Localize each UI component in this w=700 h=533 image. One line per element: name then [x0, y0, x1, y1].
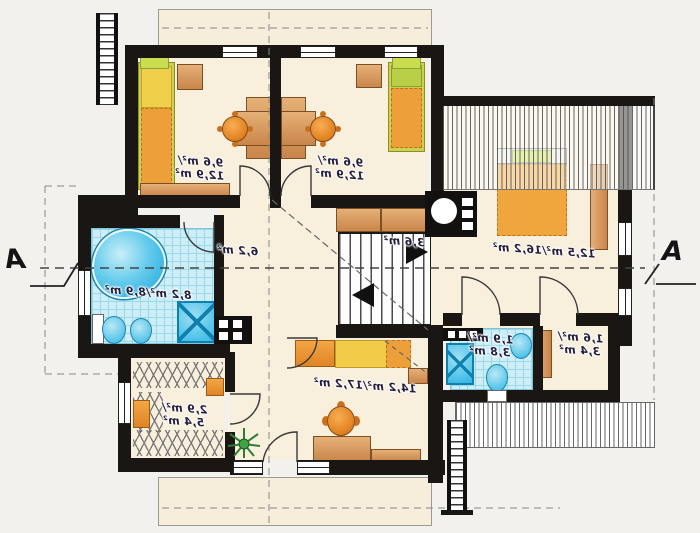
shelf-middle	[392, 57, 421, 69]
label-wardrobe: 2,9 m²/ 5,4 m²	[147, 395, 221, 436]
window-top-1	[222, 46, 258, 58]
desk-bottom	[313, 436, 371, 462]
wall-wardrobe-bottom	[118, 458, 230, 472]
cabinet-bottom	[295, 340, 335, 367]
chair-bottom	[327, 406, 355, 436]
floor-plan: 9,6 m²/ 12,9 m² 9,6 m²/ 12,9 m² 6,2 m² 3…	[0, 0, 700, 533]
chimney-flue-circle	[431, 198, 457, 224]
roof-slope-bottom-right	[455, 402, 655, 448]
marker-letter: A	[662, 236, 683, 267]
chair-middle	[310, 116, 336, 142]
bed-bottom-blanket	[386, 340, 411, 368]
section-jog-right	[645, 264, 696, 284]
wall-wardrobe-right-upper	[225, 352, 235, 392]
chimney-bathroom-icon	[214, 316, 252, 344]
label-storage: 1,6 m²/ 3,4 m²	[547, 324, 613, 364]
wall-wardrobe-right-lower	[225, 432, 235, 462]
wall-bedroom-bottom-right	[428, 330, 443, 483]
wall-wc-bottom	[443, 390, 620, 402]
chimney-vent-3	[462, 222, 473, 230]
stair-landing-right	[381, 208, 426, 232]
roof-ladder-top-left	[96, 13, 118, 105]
wall-under-stairs	[336, 325, 443, 338]
window-bottom-2	[297, 461, 330, 474]
window-right-2	[618, 288, 632, 316]
wall-right-bedroom-bottom-b	[500, 313, 540, 326]
roof-slope-top-right	[443, 106, 655, 190]
wc-toilet-tank	[487, 390, 507, 402]
wall-bath-right-lower	[214, 278, 224, 316]
wardrobe-block-2	[206, 378, 224, 396]
wall-bedrooms-bottom-a	[125, 195, 240, 208]
shower-icon	[177, 301, 217, 343]
vent-hole	[219, 320, 228, 328]
wall-bedrooms-bottom-b	[311, 195, 440, 208]
window-bathroom	[78, 270, 91, 316]
chimney-vent-1	[462, 198, 473, 206]
wall-bedroom-left-outer	[125, 45, 138, 198]
section-jog-left	[30, 263, 78, 286]
wall-bath-bottom	[78, 344, 230, 358]
window-top-3	[384, 46, 418, 58]
window-right-1	[618, 222, 632, 256]
vent-hole	[448, 331, 455, 338]
bed-left-pillow	[141, 66, 172, 108]
vent-hole	[233, 332, 242, 340]
chimney-stairs-icon	[425, 191, 477, 237]
label-staircase: 3,6 m²	[375, 231, 432, 253]
wall-bath-top	[91, 215, 180, 228]
wall-bath-top-corner	[214, 215, 224, 228]
vent-hole	[219, 332, 228, 340]
area-value: 6,2 m²	[200, 242, 276, 260]
label-bedroom-left: 9,6 m²/ 12,9 m²	[159, 147, 241, 188]
roof-ladder-foot	[441, 510, 473, 515]
wall-partition-bedrooms	[270, 45, 281, 208]
floor-lobby	[230, 352, 285, 460]
nightstand-middle	[356, 64, 382, 88]
wall-wc-storage-partition	[533, 326, 543, 392]
label-bedroom-middle: 9,6 m²/ 12,9 m²	[299, 147, 381, 188]
section-marker-left: A	[4, 246, 25, 273]
roof-overhang-bottom	[158, 477, 432, 526]
window-bottom-1	[233, 461, 263, 474]
section-marker-right: A	[662, 238, 683, 265]
window-top-2	[300, 46, 336, 58]
roof-ladder-bottom-right	[447, 420, 467, 512]
window-wardrobe	[118, 382, 131, 424]
vent-hole	[233, 320, 242, 328]
bed-middle-duvet	[391, 88, 422, 148]
shelf-left	[140, 57, 169, 69]
area-value: 3,6 m²	[376, 233, 433, 250]
roof-overhang-top	[158, 9, 432, 47]
nightstand-left	[177, 64, 203, 90]
marker-letter: A	[4, 244, 25, 275]
area-value: 8,2 m²/8,9 m²	[92, 283, 205, 304]
label-wc: 1,9 m²/ 3,8 m²	[454, 325, 526, 366]
chimney-vent-2	[462, 210, 473, 218]
stair-landing-left	[336, 208, 381, 232]
chair-left	[222, 116, 248, 142]
